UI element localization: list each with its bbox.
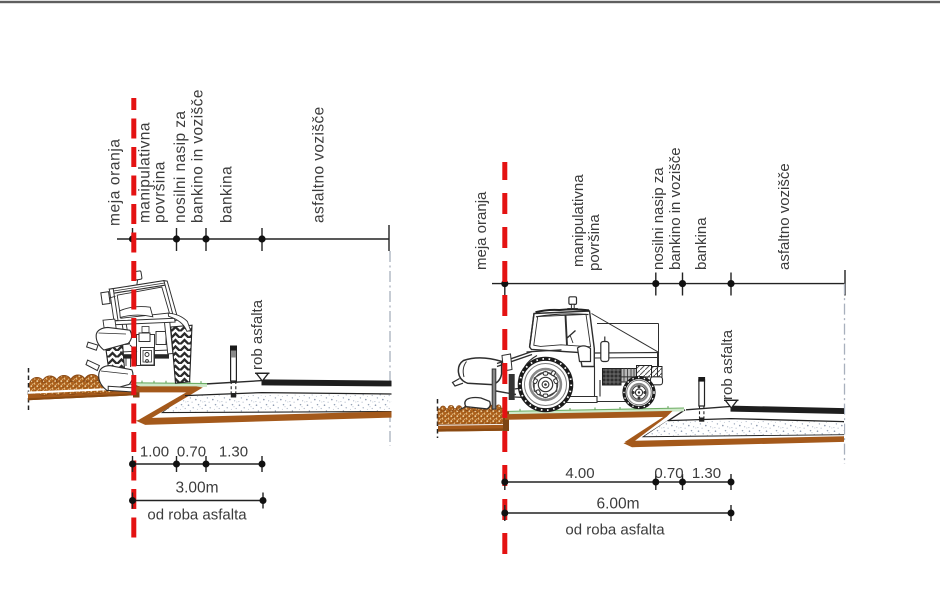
svg-text:asfaltno vozišče: asfaltno vozišče — [311, 106, 328, 223]
svg-text:rob asfalta: rob asfalta — [719, 329, 736, 400]
svg-text:bankina: bankina — [693, 217, 710, 270]
svg-text:3.00m: 3.00m — [175, 480, 218, 497]
svg-text:0.70: 0.70 — [654, 465, 683, 482]
svg-text:meja oranja: meja oranja — [107, 138, 124, 226]
svg-text:površina: površina — [152, 161, 169, 223]
svg-text:1.00: 1.00 — [140, 444, 169, 461]
svg-text:bankino in vozišče: bankino in vozišče — [190, 89, 207, 223]
svg-text:bankino in vozišče: bankino in vozišče — [667, 147, 684, 270]
svg-text:površina: površina — [586, 214, 603, 271]
svg-text:nosilni nasip za: nosilni nasip za — [650, 167, 667, 270]
svg-text:0.70: 0.70 — [177, 444, 206, 461]
svg-text:nosilni nasip za: nosilni nasip za — [172, 111, 189, 223]
svg-text:1.30: 1.30 — [692, 465, 721, 482]
svg-text:4.00: 4.00 — [565, 465, 594, 482]
svg-text:manipulativna: manipulativna — [570, 174, 587, 267]
svg-text:rob asfalta: rob asfalta — [249, 299, 266, 370]
svg-text:bankina: bankina — [219, 166, 236, 223]
svg-text:1.30: 1.30 — [219, 444, 248, 461]
svg-text:6.00m: 6.00m — [596, 496, 639, 513]
svg-text:od roba asfalta: od roba asfalta — [147, 507, 247, 524]
svg-text:meja oranja: meja oranja — [473, 191, 490, 270]
svg-text:od roba asfalta: od roba asfalta — [565, 522, 665, 539]
svg-text:asfaltno vozišče: asfaltno vozišče — [776, 163, 793, 270]
